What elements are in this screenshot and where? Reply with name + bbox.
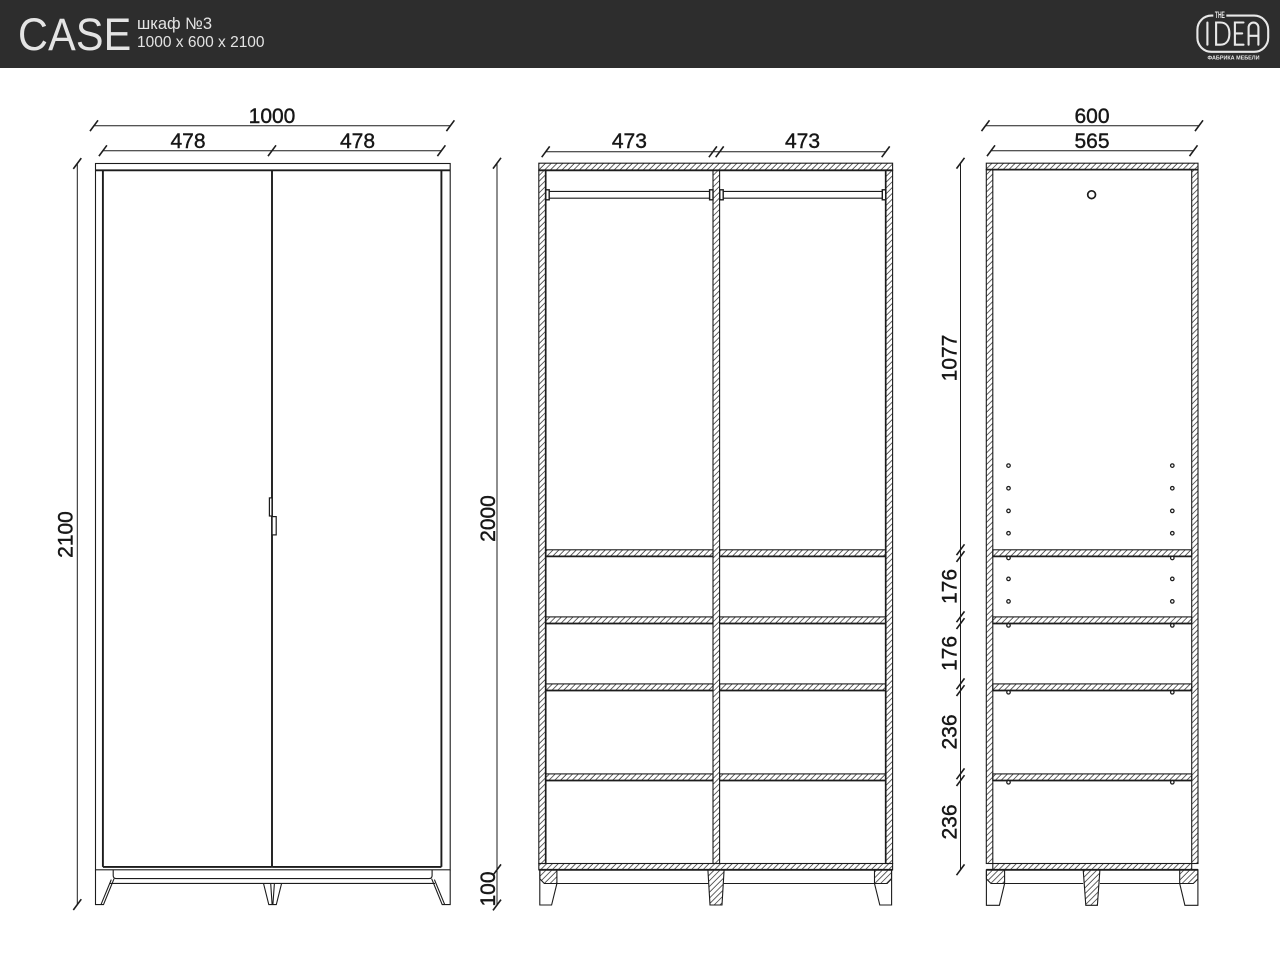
svg-text:236: 236 xyxy=(938,714,961,749)
svg-text:176: 176 xyxy=(938,636,961,671)
svg-text:176: 176 xyxy=(938,569,961,604)
svg-text:236: 236 xyxy=(938,804,961,839)
svg-text:565: 565 xyxy=(1074,130,1109,153)
svg-text:478: 478 xyxy=(340,130,375,153)
svg-text:600: 600 xyxy=(1074,105,1109,128)
svg-text:1077: 1077 xyxy=(938,335,961,382)
svg-text:473: 473 xyxy=(612,130,647,153)
svg-text:478: 478 xyxy=(170,130,205,153)
svg-text:473: 473 xyxy=(785,130,820,153)
svg-text:2100: 2100 xyxy=(54,511,77,558)
svg-text:100: 100 xyxy=(477,871,500,906)
svg-text:2000: 2000 xyxy=(477,495,500,542)
svg-text:1000: 1000 xyxy=(249,105,296,128)
